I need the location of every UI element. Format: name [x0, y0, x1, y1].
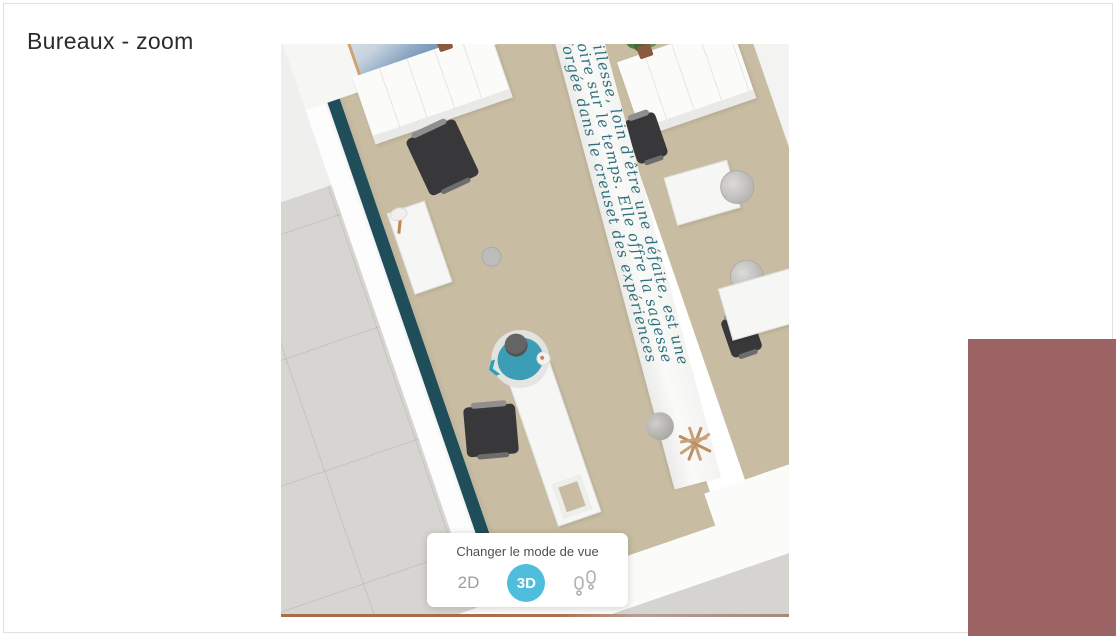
office-chair[interactable]	[463, 403, 519, 457]
mode-2d-button[interactable]: 2D	[458, 573, 480, 593]
viewport-bottom-wall-edge	[281, 614, 789, 617]
floorplan-3d-viewport[interactable]: ❮ La vieillesse, loin d'être une défaite…	[281, 44, 789, 617]
view-mode-options: 2D 3D	[427, 564, 628, 602]
footsteps-icon[interactable]	[573, 570, 597, 597]
view-mode-panel: Changer le mode de vue 2D 3D	[427, 533, 628, 607]
mode-3d-button-active[interactable]: 3D	[507, 564, 545, 602]
scene-3d: ❮ La vieillesse, loin d'être une défaite…	[281, 44, 789, 617]
view-mode-panel-title: Changer le mode de vue	[427, 544, 628, 559]
slide: Bureaux - zoom	[0, 0, 1116, 636]
page-title: Bureaux - zoom	[27, 28, 194, 55]
decor-rectangle	[968, 339, 1116, 636]
